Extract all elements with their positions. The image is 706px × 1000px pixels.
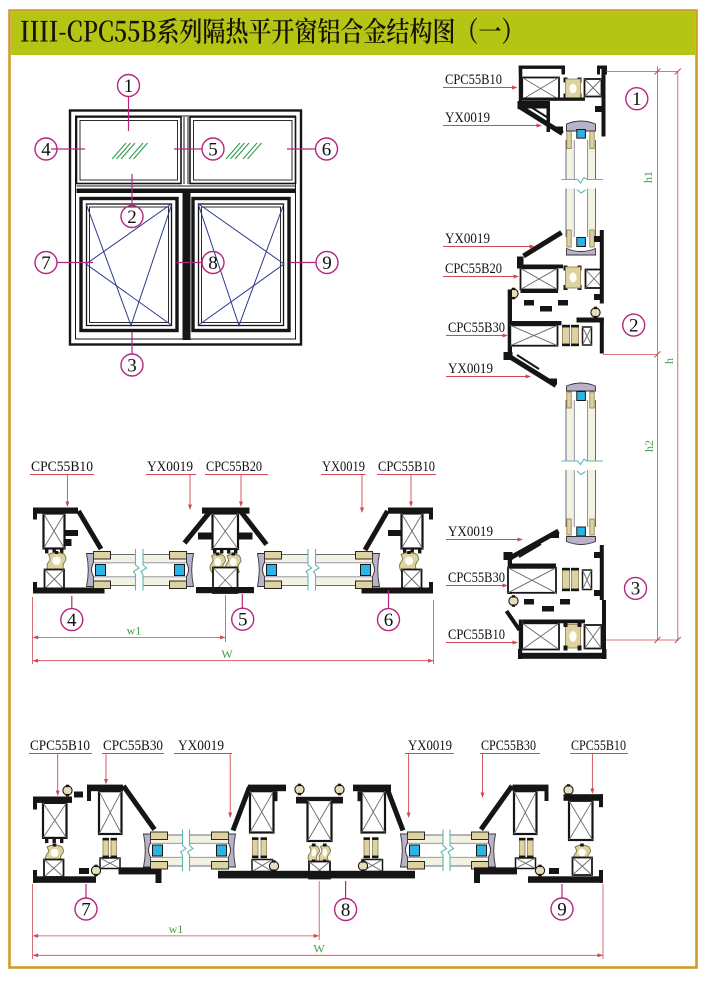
- svg-text:CPC55B30: CPC55B30: [448, 320, 505, 336]
- svg-text:h2: h2: [642, 440, 656, 452]
- svg-text:3: 3: [127, 355, 137, 376]
- svg-text:4: 4: [41, 139, 51, 160]
- svg-text:7: 7: [81, 899, 91, 920]
- svg-text:w1: w1: [169, 922, 184, 936]
- svg-text:9: 9: [322, 253, 332, 274]
- svg-text:YX0019: YX0019: [322, 459, 365, 475]
- svg-text:6: 6: [384, 610, 394, 631]
- svg-text:9: 9: [557, 899, 567, 920]
- svg-text:YX0019: YX0019: [178, 738, 224, 754]
- svg-text:CPC55B30: CPC55B30: [103, 738, 163, 754]
- svg-text:CPC55B10: CPC55B10: [378, 459, 435, 475]
- svg-text:3: 3: [631, 579, 641, 600]
- svg-text:YX0019: YX0019: [445, 231, 490, 247]
- svg-text:YX0019: YX0019: [448, 361, 493, 377]
- svg-text:CPC55B10: CPC55B10: [571, 738, 626, 754]
- svg-text:W: W: [221, 647, 233, 661]
- svg-text:1: 1: [124, 76, 134, 97]
- svg-text:2: 2: [127, 207, 137, 228]
- svg-text:CPC55B20: CPC55B20: [445, 261, 502, 277]
- svg-text:6: 6: [322, 139, 332, 160]
- svg-text:CPC55B30: CPC55B30: [481, 738, 536, 754]
- svg-text:8: 8: [208, 253, 218, 274]
- svg-text:5: 5: [208, 139, 218, 160]
- svg-text:YX0019: YX0019: [448, 524, 493, 540]
- svg-text:CPC55B30: CPC55B30: [448, 570, 505, 586]
- svg-text:CPC55B10: CPC55B10: [31, 459, 93, 475]
- svg-text:YX0019: YX0019: [408, 738, 452, 754]
- svg-text:h1: h1: [641, 171, 655, 183]
- svg-text:8: 8: [341, 900, 351, 921]
- svg-text:4: 4: [67, 610, 77, 631]
- svg-text:1: 1: [632, 89, 642, 110]
- svg-text:CPC55B20: CPC55B20: [206, 459, 262, 475]
- svg-text:YX0019: YX0019: [147, 459, 193, 475]
- svg-text:5: 5: [238, 610, 248, 631]
- svg-text:h: h: [662, 358, 676, 364]
- svg-text:W: W: [313, 942, 325, 956]
- svg-text:w1: w1: [127, 624, 142, 638]
- svg-text:CPC55B10: CPC55B10: [445, 72, 502, 88]
- svg-text:2: 2: [629, 315, 639, 336]
- svg-text:CPC55B10: CPC55B10: [30, 738, 90, 754]
- svg-text:YX0019: YX0019: [445, 110, 490, 126]
- svg-text:7: 7: [41, 253, 51, 274]
- svg-text:CPC55B10: CPC55B10: [448, 627, 505, 643]
